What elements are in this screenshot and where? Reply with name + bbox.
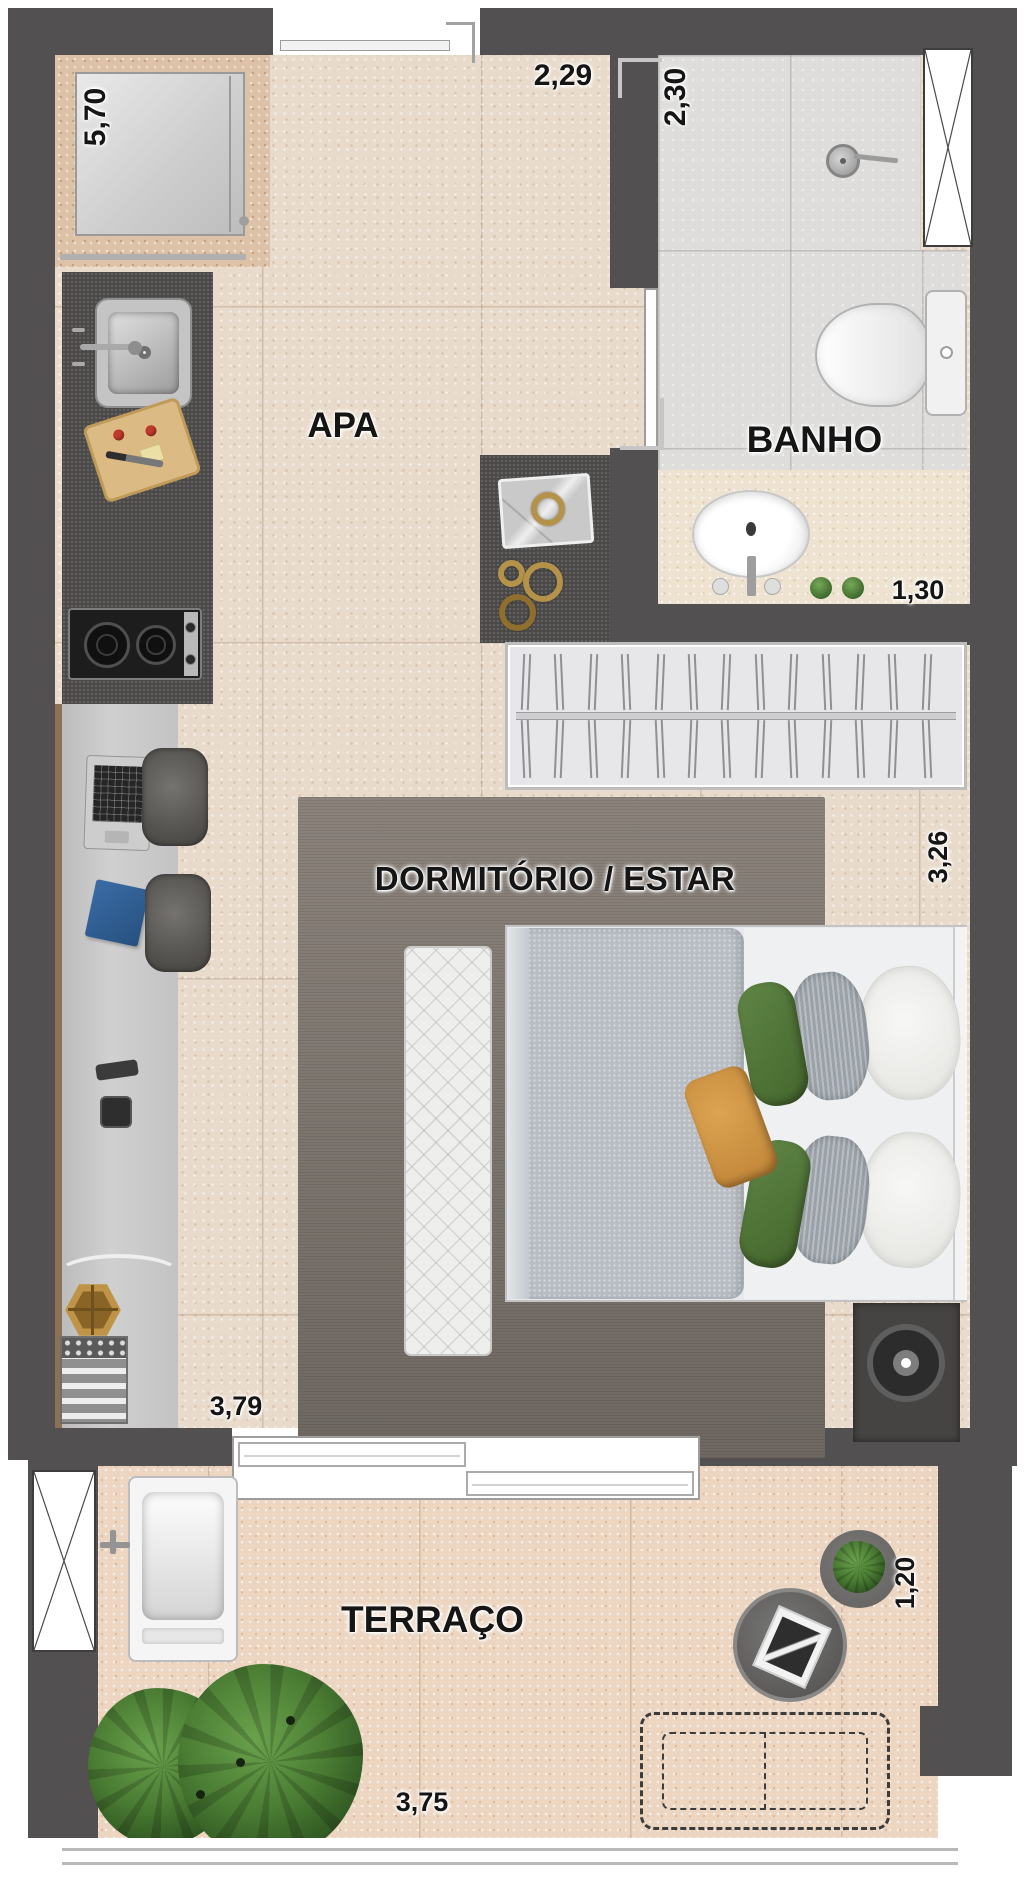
laundry-tub <box>128 1476 238 1662</box>
tomato-icon <box>144 424 158 438</box>
railing-line <box>62 1862 958 1865</box>
phone <box>100 1096 132 1128</box>
ventilation-shaft-terrace <box>32 1470 96 1652</box>
laptop-keyboard <box>92 765 144 823</box>
tub-tap-stem <box>110 1530 116 1554</box>
gold-bowl <box>498 560 525 587</box>
plant-berry <box>196 1790 205 1799</box>
trivet-spoke <box>91 1285 94 1335</box>
foot-bench <box>404 946 492 1356</box>
railing-line <box>62 1848 958 1851</box>
decor-frame <box>752 1605 832 1689</box>
cooktop-knob <box>185 654 196 665</box>
toilet-flush-button <box>940 346 953 359</box>
laundry-tub-ledge <box>142 1628 224 1644</box>
decor-frame-photo <box>763 1617 821 1678</box>
lamp-center <box>901 1358 911 1368</box>
door-jamb-mark <box>620 398 664 450</box>
burner-large <box>84 622 130 668</box>
fridge-door-line <box>229 76 231 232</box>
dim-label-120: 1,20 <box>888 1543 922 1623</box>
cooktop <box>68 608 202 680</box>
table-lamp-icon <box>867 1324 945 1402</box>
stool <box>145 874 211 972</box>
desk-wood-edge <box>55 704 62 1428</box>
floor-plan: 5,70 2,29 2,30 APA BANHO 1,30 DORMITÓRIO… <box>0 0 1025 1902</box>
faucet-knob <box>764 578 781 595</box>
cooktop-knob <box>185 622 196 633</box>
toilet-bowl <box>815 303 933 407</box>
laptop-trackpad <box>105 831 129 844</box>
laundry-tub-basin <box>142 1492 224 1620</box>
dim-label-229: 2,29 <box>518 59 608 93</box>
entry-door-hinge-icon <box>446 22 475 63</box>
terrace-railing <box>62 1838 958 1880</box>
wall-below-bathroom <box>610 604 1010 645</box>
kitchen-faucet-head <box>128 341 142 355</box>
faucet-handle-bottom <box>72 362 85 366</box>
wall-left <box>8 8 55 1460</box>
entry-door-leaf <box>280 40 450 51</box>
counter-edge-line <box>60 254 246 260</box>
sliding-door-panel <box>238 1442 466 1467</box>
small-plant-icon <box>842 577 864 599</box>
wall-top-left <box>8 8 273 55</box>
stool <box>142 748 208 846</box>
gold-tray-ring <box>531 492 565 526</box>
room-label-terraco: TERRAÇO <box>325 1596 540 1642</box>
faucet-handle-top <box>72 328 85 332</box>
gold-bowl <box>499 594 536 631</box>
dish-rack-scallop <box>62 1338 126 1358</box>
ventilation-shaft-top <box>923 48 973 247</box>
fridge-handle <box>239 216 249 226</box>
wall-top-right-fill <box>923 8 970 48</box>
terrace-wall-right <box>938 1466 1012 1706</box>
future-furniture-divider <box>764 1732 768 1810</box>
wardrobe <box>505 642 967 790</box>
room-label-dormitorio-estar: DORMITÓRIO / ESTAR <box>320 856 790 900</box>
vanity-drain <box>746 522 756 536</box>
sliding-door <box>232 1436 700 1500</box>
plant-berry <box>286 1716 295 1725</box>
room-label-apa: APA <box>293 404 393 446</box>
dim-label-379: 3,79 <box>194 1390 278 1422</box>
burner-small <box>136 625 176 665</box>
vanity-faucet <box>747 556 756 596</box>
wall-right <box>970 8 1017 1466</box>
counter-end-curve <box>56 1254 182 1296</box>
blanket-fold <box>507 928 529 1299</box>
dim-label-130: 1,30 <box>878 574 958 606</box>
tomato-icon <box>112 428 126 442</box>
wall-top-mid <box>480 8 923 55</box>
door-jamb-mark <box>618 58 662 98</box>
plant-berry <box>236 1758 245 1767</box>
faucet-knob <box>712 578 729 595</box>
dim-label-375: 3,75 <box>380 1786 464 1818</box>
dim-label-230: 2,30 <box>658 57 694 137</box>
room-label-banho: BANHO <box>722 418 907 460</box>
dim-label-570: 5,70 <box>78 77 114 157</box>
shower-head-icon <box>826 144 860 178</box>
headboard <box>953 927 967 1300</box>
sliding-door-panel <box>466 1471 694 1496</box>
wardrobe-hangers <box>508 645 964 787</box>
terrace-round-table <box>733 1588 847 1702</box>
gold-bowl <box>523 562 563 602</box>
small-plant-icon <box>810 577 832 599</box>
terrace-wall-right-step <box>920 1706 1012 1776</box>
dim-label-326: 3,26 <box>921 817 955 897</box>
bathroom-shower-floor <box>658 55 920 250</box>
